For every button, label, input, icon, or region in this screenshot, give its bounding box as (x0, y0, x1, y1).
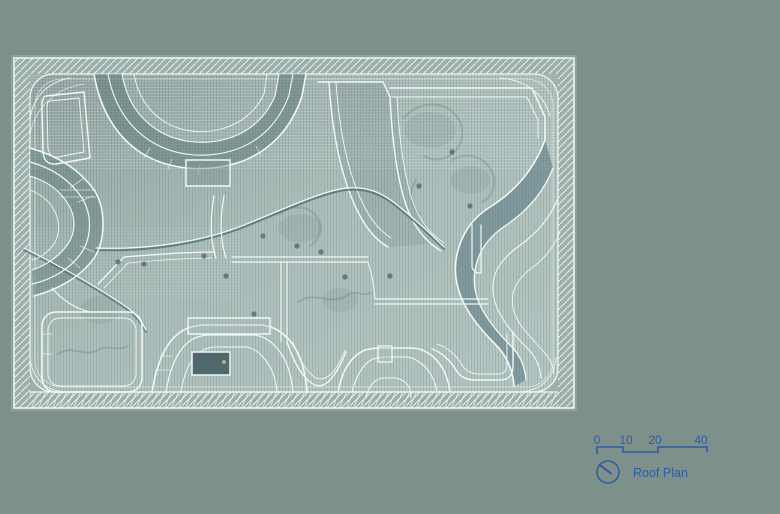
scale-label-0: 0 (594, 433, 601, 447)
north-indicator-needle (601, 466, 612, 474)
scale-label-20: 20 (648, 433, 662, 447)
scale-bar-line (597, 447, 707, 454)
u-band-hatch-rect (186, 160, 230, 186)
scale-label-40: 40 (694, 433, 708, 447)
arch-left-cap-rect (188, 318, 270, 334)
drawing-title-block: Roof Plan (597, 461, 688, 483)
roof-plan-label: Roof Plan (633, 466, 688, 480)
drawing-canvas: 0 10 20 40 Roof Plan (0, 0, 780, 514)
scale-bar: 0 10 20 40 (594, 433, 708, 454)
bottom-band-hatch (30, 393, 558, 408)
scale-label-10: 10 (619, 433, 633, 447)
arch-right-cap-rect (378, 346, 392, 362)
skylight-dot (222, 360, 226, 364)
skylight (192, 352, 230, 375)
roof-plan-drawing: 0 10 20 40 Roof Plan (0, 0, 780, 514)
